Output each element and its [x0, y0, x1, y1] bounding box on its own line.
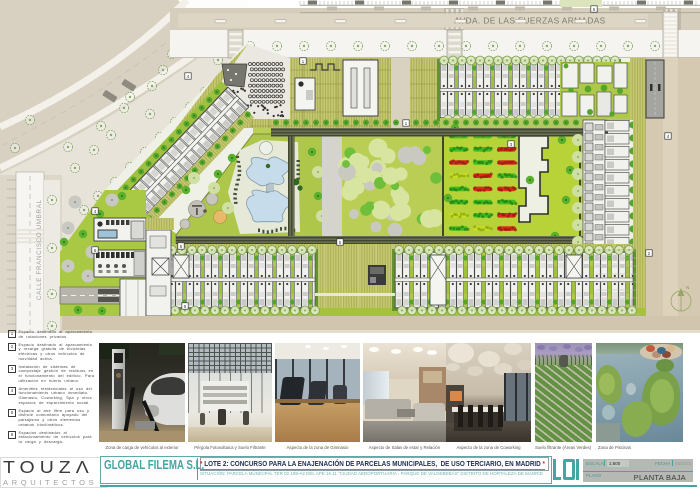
- svg-text:CALLE FRANCISCO UMBRAL: CALLE FRANCISCO UMBRAL: [36, 199, 43, 300]
- svg-text:3: 3: [510, 142, 513, 148]
- svg-text:5: 5: [593, 7, 596, 13]
- svg-text:5: 5: [339, 240, 342, 246]
- svg-text:5: 5: [180, 244, 183, 250]
- svg-text:N: N: [686, 285, 689, 290]
- svg-text:4: 4: [667, 134, 670, 140]
- svg-text:4: 4: [94, 209, 97, 215]
- svg-text:1: 1: [302, 59, 305, 65]
- svg-text:1: 1: [405, 121, 408, 127]
- svg-text:6: 6: [184, 304, 187, 310]
- svg-text:2: 2: [648, 251, 651, 257]
- svg-text:6: 6: [94, 248, 97, 254]
- svg-text:4: 4: [187, 74, 190, 80]
